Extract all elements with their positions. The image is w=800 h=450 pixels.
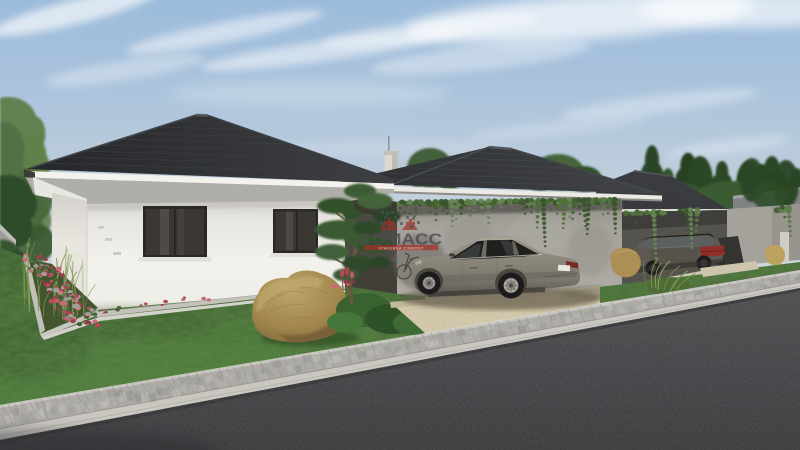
svg-text:STAVEBNA CINNOST: STAVEBNA CINNOST <box>378 246 424 250</box>
